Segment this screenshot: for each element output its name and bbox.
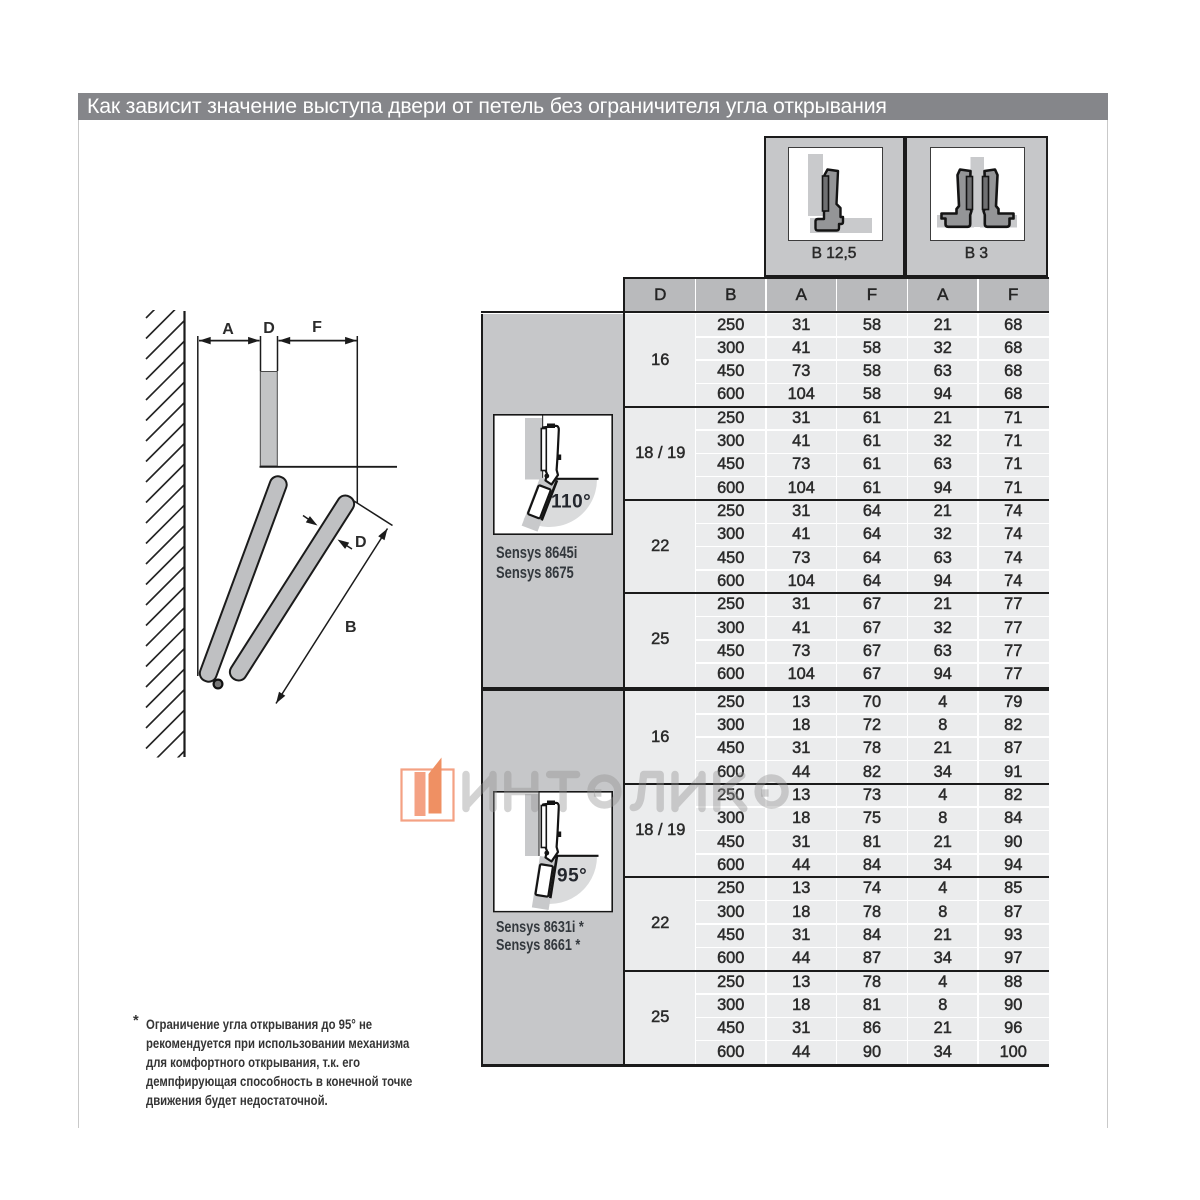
- svg-text:D: D: [263, 320, 275, 337]
- svg-text:D: D: [355, 534, 367, 551]
- svg-text:110°: 110°: [551, 492, 591, 513]
- svg-text:A: A: [222, 321, 234, 338]
- svg-text:F: F: [312, 319, 322, 336]
- svg-text:B: B: [345, 619, 357, 636]
- svg-text:95°: 95°: [557, 866, 587, 887]
